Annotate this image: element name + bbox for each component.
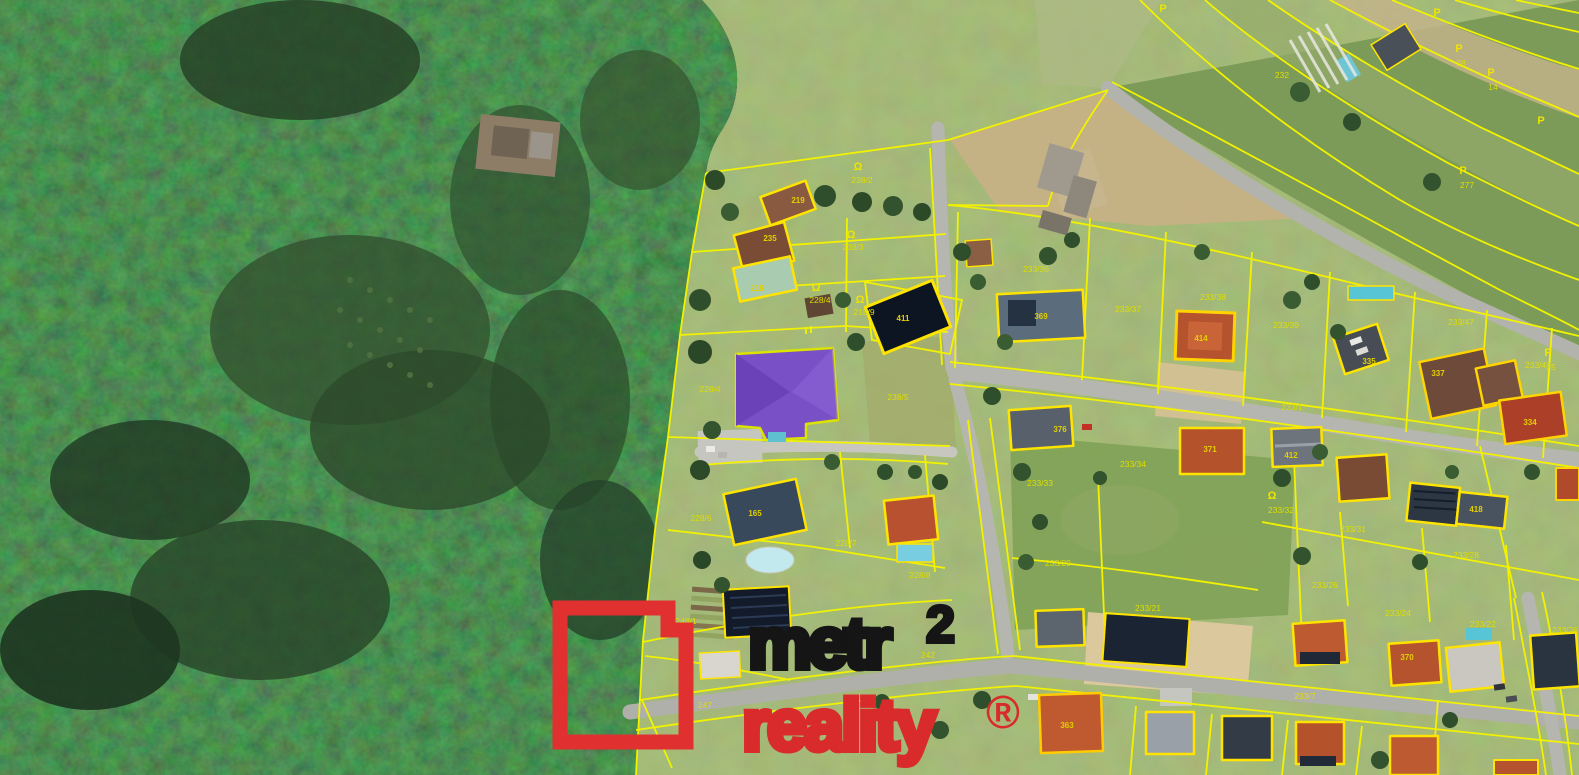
house-brown-mid [1337, 454, 1390, 501]
cadastral-symbol-icon: Ω [847, 229, 856, 241]
parcel-number-label: 233/7 [1294, 691, 1316, 701]
parcel-number-label: 233/39 [1273, 320, 1299, 330]
cadastral-symbol-icon: P [1455, 43, 1462, 55]
house-gray-below [1146, 712, 1194, 754]
parcel-number-label: 233/31 [1340, 524, 1366, 534]
car-gray [718, 452, 727, 458]
pool [897, 544, 933, 562]
cadastral-symbol-icon: P [1537, 115, 1544, 127]
parcel-number-label: 233/1 [1281, 402, 1303, 412]
house-orange-below [1296, 722, 1344, 766]
parcel-number-label: 233/37 [1115, 304, 1141, 314]
building-number-label: 412 [1284, 451, 1298, 460]
car-white [706, 446, 715, 452]
building-number-label: 370 [1400, 653, 1414, 662]
parcel-number-label: 233/36 [1023, 264, 1049, 274]
house-edge-bottom [1494, 760, 1538, 775]
cadastral-symbol-icon: Ω [812, 282, 821, 294]
parcel-number-label: 233/32 [1268, 505, 1294, 515]
parcel-number-label: 233/26 [1312, 580, 1338, 590]
parcel-number-label: 233/47 [1448, 317, 1474, 327]
building-number-label: 363 [1060, 721, 1074, 730]
building-number-label: 337 [1431, 369, 1445, 378]
parcel-number-label: 28 [1456, 58, 1466, 68]
cadastral-symbol-icon: Ω [856, 294, 865, 306]
parcel-number-label: 233/38 [1200, 292, 1226, 302]
building-number-label: 369 [1034, 312, 1048, 321]
brand-text-sup2: 2 [926, 596, 955, 654]
parcel-number-label: 238/5 [887, 392, 909, 402]
building-number-label: 371 [1203, 445, 1217, 454]
cadastral-symbol-icon: P [1544, 347, 1551, 359]
building-number-label: 334 [1523, 418, 1537, 427]
parcel-number-label: 228/8 [909, 570, 931, 580]
parcel-number-label: 277 [1460, 180, 1474, 190]
aerial-map: 238/2238/3228/4218/9228/4238/5228/6228/7… [0, 0, 1579, 775]
parcel-number-label: 232 [1275, 70, 1289, 80]
house-gray-south [1035, 609, 1084, 647]
building-number-label: 335 [1362, 357, 1376, 366]
parcel-number-label: 233/24 [1385, 608, 1411, 618]
building-number-label: 235 [763, 234, 777, 243]
map-canvas: 238/2238/3228/4218/9228/4238/5228/6228/7… [0, 0, 1579, 775]
building-number-label: 376 [1053, 425, 1067, 434]
parcel-number-label: 247 [698, 700, 712, 710]
parcel-number-label: 218/9 [853, 307, 875, 317]
pond [768, 432, 786, 442]
cadastral-symbol-icon: Ω [854, 161, 863, 173]
parcel-number-label: 233/21 [1135, 603, 1161, 613]
brand-text-metr: metr [748, 604, 891, 684]
parcel-number-label: 233/34 [1120, 459, 1146, 469]
building-number-label: 219 [791, 196, 805, 205]
registered-mark-icon: ® [986, 686, 1020, 738]
car-white [1028, 694, 1038, 700]
building-number-label: 218 [750, 284, 764, 293]
parcel-number-label: 228/7 [835, 538, 857, 548]
car-red [1082, 424, 1092, 430]
building-number-label: 165 [748, 509, 762, 518]
parcel-number-label: 233/29 [1045, 558, 1071, 568]
parcel-number-label: 228/4 [699, 384, 721, 394]
house-dark-se [1530, 632, 1579, 689]
pool [746, 547, 794, 573]
building-number-label: 411 [897, 314, 910, 323]
brand-text-reality: reality [742, 686, 936, 766]
cadastral-symbol-icon: Ω [1268, 490, 1277, 502]
parcel-number-label: 238/2 [851, 175, 873, 185]
cadastral-symbol-icon: P [1459, 165, 1466, 177]
parcel-number-label: 233/33 [1027, 478, 1053, 488]
parcel-number-label: 233/26 [1552, 625, 1578, 635]
building-number-label: 418 [1469, 505, 1483, 514]
cadastral-symbol-icon: P [1433, 7, 1440, 19]
pool [1348, 286, 1394, 300]
house-construction [1102, 613, 1189, 667]
parcel-number-label: 233/22 [1470, 619, 1496, 629]
parcel-number-label: 233/28 [1453, 550, 1479, 560]
house-dark-below [1222, 716, 1272, 760]
cadastral-symbol-icon: P [1159, 3, 1166, 15]
parcel-number-label: 228/6 [690, 513, 712, 523]
cadastral-symbol-icon: P [1487, 67, 1494, 79]
building-white [699, 651, 740, 679]
house-orange-625 [1293, 620, 1348, 666]
parcel-number-label: 25 [1546, 362, 1556, 372]
house-orange-sw [1390, 736, 1438, 775]
forest-clearing [475, 114, 560, 177]
house-edge-right [1556, 468, 1579, 500]
house-orange-west [884, 496, 938, 545]
house-370 [1389, 640, 1442, 685]
parcel-number-label: 228/4 [809, 295, 831, 305]
building-number-label: 414 [1194, 334, 1208, 343]
parcel-number-label: 238/3 [842, 242, 864, 252]
parcel-number-label: 14 [1488, 82, 1498, 92]
